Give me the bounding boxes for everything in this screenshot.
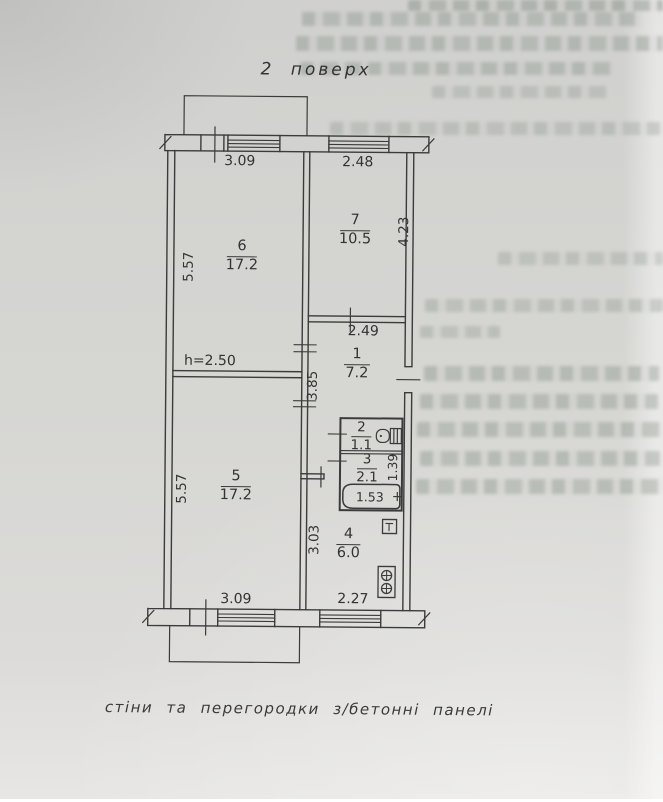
dim-left-lower: 5.57 (174, 469, 190, 509)
room-label-2: 2 1.1 (339, 420, 383, 453)
room-label-3: 3 2.1 (345, 452, 389, 485)
dim-ceiling-height: h=2.50 (184, 353, 254, 370)
room-area: 1.1 (339, 438, 383, 453)
room-number: 5 (214, 469, 258, 485)
room-number: 6 (220, 239, 264, 255)
balcony-bottom-outline (169, 626, 299, 663)
dim-left-upper: 5.57 (181, 247, 197, 287)
room-area: 17.2 (214, 488, 258, 504)
dim-right-upper: 4.23 (396, 212, 412, 252)
dim-hall-width: 2.49 (335, 323, 391, 339)
room-label-1: 1 7.2 (335, 347, 379, 382)
room-area: 2.1 (345, 470, 389, 485)
room-area: 6.0 (326, 546, 370, 562)
room-label-5: 5 17.2 (214, 469, 258, 504)
outer-walls (148, 134, 429, 627)
dimension-ticks (143, 126, 434, 636)
balcony-top-outline (184, 96, 307, 136)
scanned-floorplan-page: 2 поверх (0, 0, 663, 799)
room-area: 17.2 (220, 258, 264, 274)
vent-icon (382, 519, 396, 533)
room-label-4: 4 6.0 (326, 527, 370, 562)
room-number: 4 (326, 527, 370, 543)
dim-bathtub-length: 1.53 (342, 489, 398, 504)
room-label-6: 6 17.2 (220, 239, 264, 274)
dim-bottom-window-right: 2.27 (325, 591, 381, 607)
drawing-area: 2 поверх (0, 0, 663, 802)
dim-top-window-left: 3.09 (212, 153, 268, 169)
dim-hall-depth: 3.85 (305, 366, 321, 406)
room-area: 7.2 (335, 366, 379, 382)
floor-plan-drawing (0, 0, 663, 802)
room-number: 7 (333, 213, 377, 229)
dim-kitchen-depth: 3.03 (306, 520, 322, 560)
dim-bottom-window-left: 3.09 (208, 591, 264, 607)
room-area: 10.5 (333, 232, 377, 248)
room-label-7: 7 10.5 (333, 213, 377, 248)
dim-top-window-right: 2.48 (330, 154, 386, 170)
room-number: 2 (339, 420, 383, 435)
room-number: 3 (345, 452, 389, 467)
room-number: 1 (335, 347, 379, 363)
